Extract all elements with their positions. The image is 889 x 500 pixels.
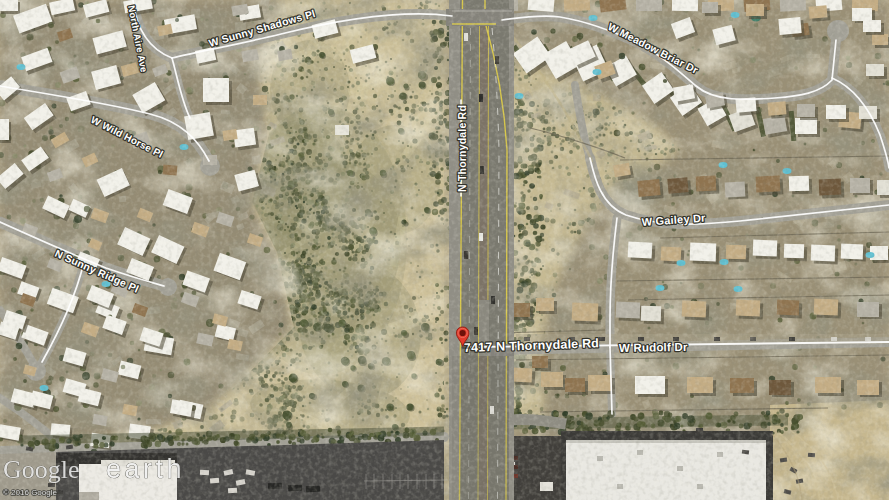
- svg-text:W Rudolf Dr: W Rudolf Dr: [619, 341, 688, 354]
- svg-text:Google: Google: [3, 455, 80, 484]
- svg-text:earth: earth: [106, 454, 185, 484]
- svg-text:© 2016 Google: © 2016 Google: [3, 488, 57, 497]
- svg-text:N Thornydale Rd: N Thornydale Rd: [456, 105, 468, 192]
